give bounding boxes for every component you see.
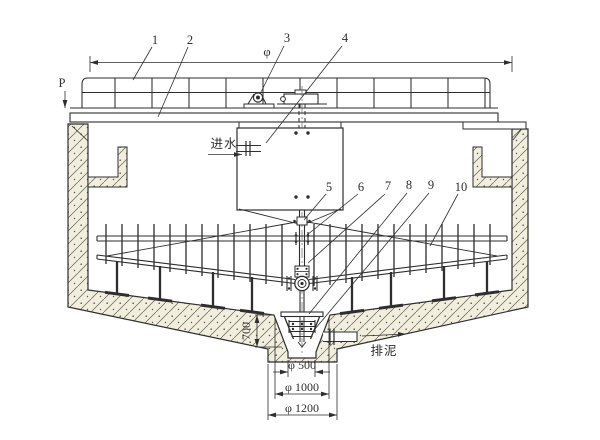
scraper-mount-bar [281, 312, 323, 317]
callout-8: 8 [406, 178, 412, 192]
dim1200-text: φ 1200 [285, 401, 319, 415]
sludge-label: 排泥 [370, 344, 397, 358]
motor-base [244, 104, 274, 108]
dim700-text: 700 [239, 322, 253, 340]
thickener-section-diagram: 1 2 3 4 5 6 7 8 9 10 φ P 进水 排泥 700 φ 500… [0, 0, 600, 440]
callout-10: 10 [455, 180, 468, 194]
motor-shaft-dot [257, 96, 260, 99]
effluent-trough-left [88, 147, 127, 187]
callout-3: 3 [284, 31, 290, 45]
gearbox [284, 94, 318, 104]
callout-5: 5 [326, 180, 332, 194]
callout-6: 6 [358, 180, 364, 194]
inlet-label: 进水 [210, 137, 237, 151]
p-label: P [59, 76, 66, 90]
callout-9: 9 [428, 178, 434, 192]
phi-extension-lines [90, 56, 512, 72]
feedwell-box [237, 128, 343, 210]
callout-7: 7 [385, 179, 391, 193]
sludge-pipe-body [323, 332, 357, 342]
phi-label: φ [263, 45, 270, 59]
callout-4: 4 [342, 31, 349, 45]
gearbox-input-shaft [281, 97, 286, 102]
dim500-text: φ 500 [288, 358, 316, 372]
center-hub-dot [300, 282, 303, 285]
feedwell-bottom-braces [239, 209, 341, 224]
dim1000-text: φ 1000 [285, 380, 319, 394]
bridge-end-support [463, 122, 526, 129]
callout-1: 1 [152, 33, 158, 47]
feedwell [236, 122, 343, 224]
gearbox-cap [295, 90, 306, 94]
callout-2: 2 [187, 33, 193, 47]
effluent-trough-right [473, 147, 512, 187]
drawing-sheet: 1 2 3 4 5 6 7 8 9 10 φ P 进水 排泥 700 φ 500… [0, 0, 600, 440]
feedwell-hangers [239, 122, 341, 128]
